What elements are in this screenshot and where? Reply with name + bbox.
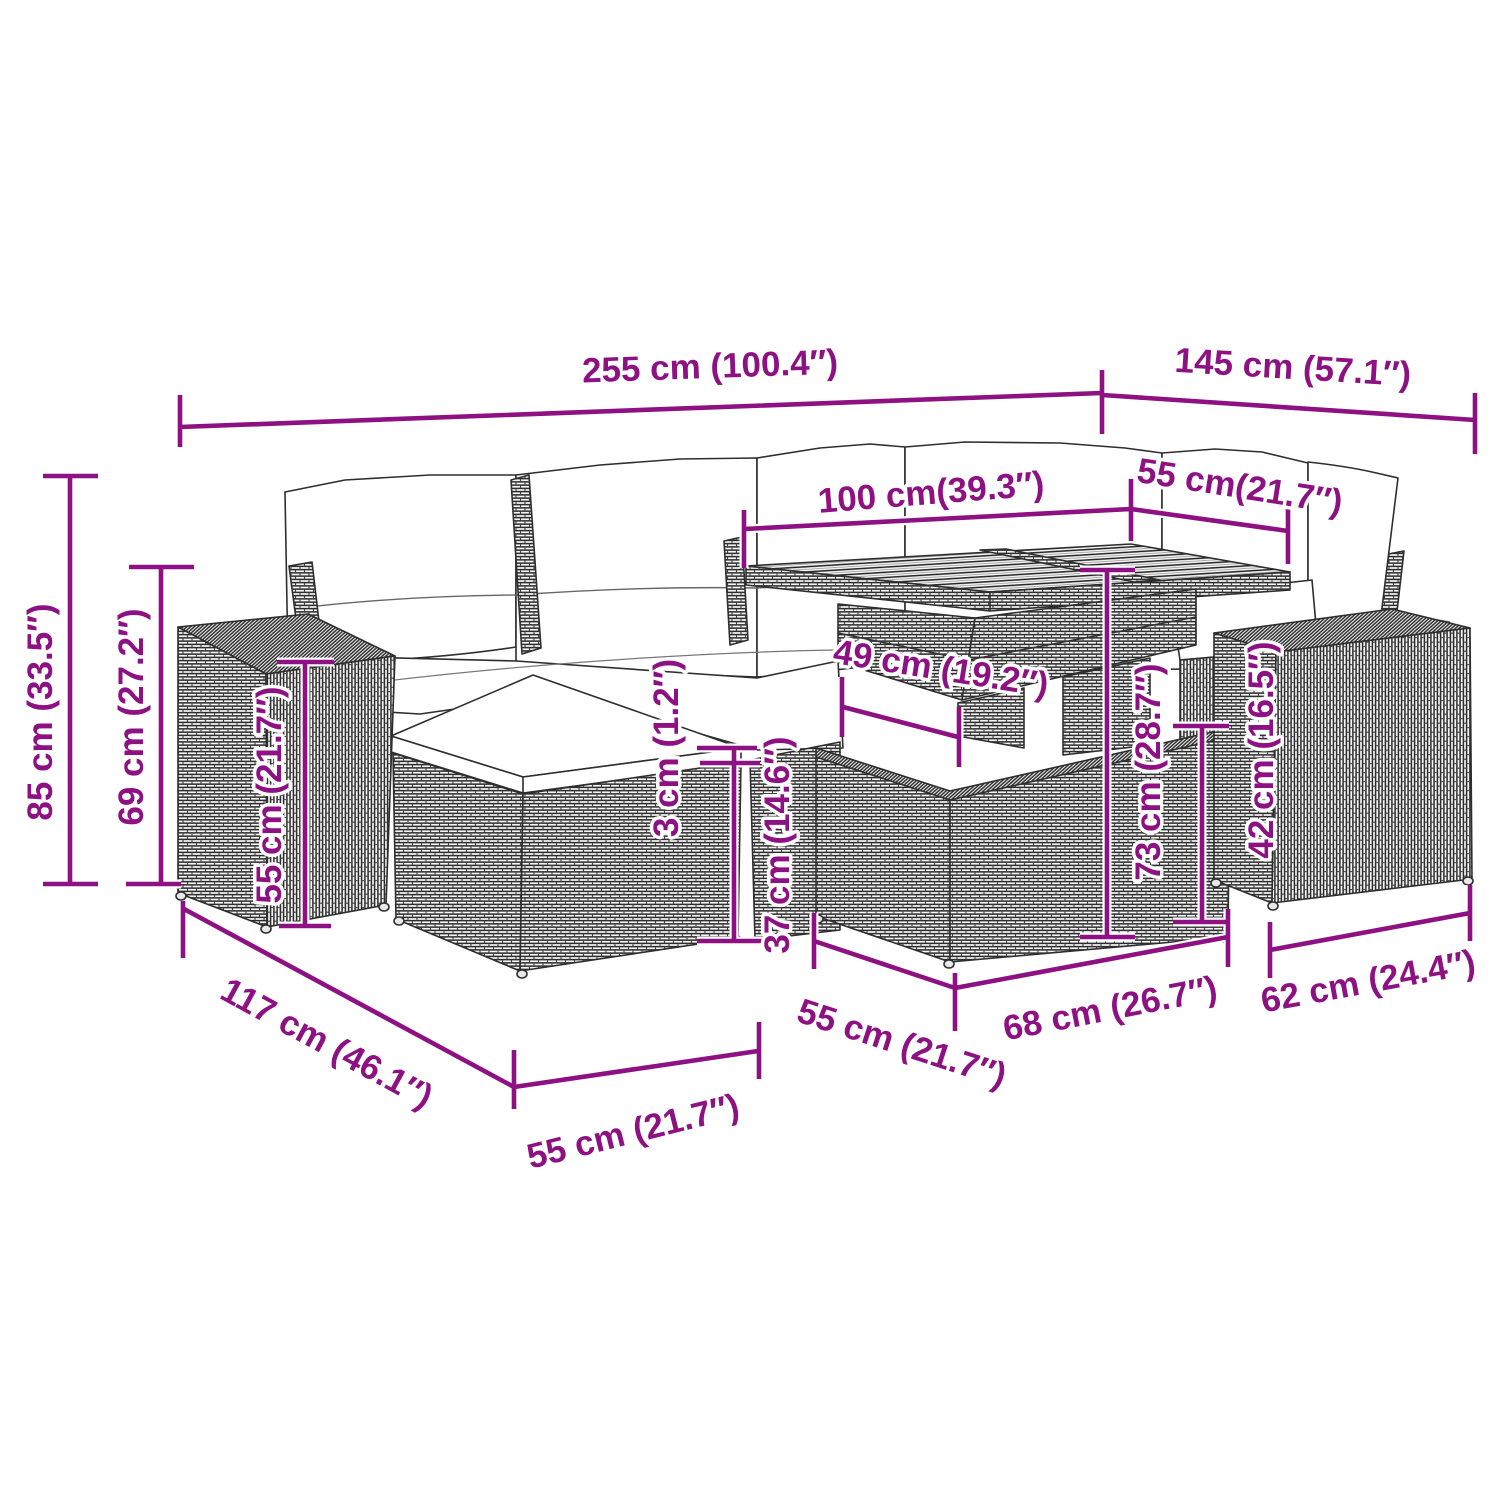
svg-text:37 cm (14.6″): 37 cm (14.6″) xyxy=(758,736,797,953)
svg-text:42 cm (16.5″): 42 cm (16.5″) xyxy=(1242,641,1281,858)
svg-text:3 cm (1.2″): 3 cm (1.2″) xyxy=(647,659,686,837)
svg-text:55 cm (21.7″): 55 cm (21.7″) xyxy=(250,686,289,903)
svg-text:85 cm (33.5″): 85 cm (33.5″) xyxy=(21,603,60,820)
svg-text:69 cm (27.2″): 69 cm (27.2″) xyxy=(112,608,151,825)
svg-text:73 cm (28.7″): 73 cm (28.7″) xyxy=(1129,663,1168,880)
